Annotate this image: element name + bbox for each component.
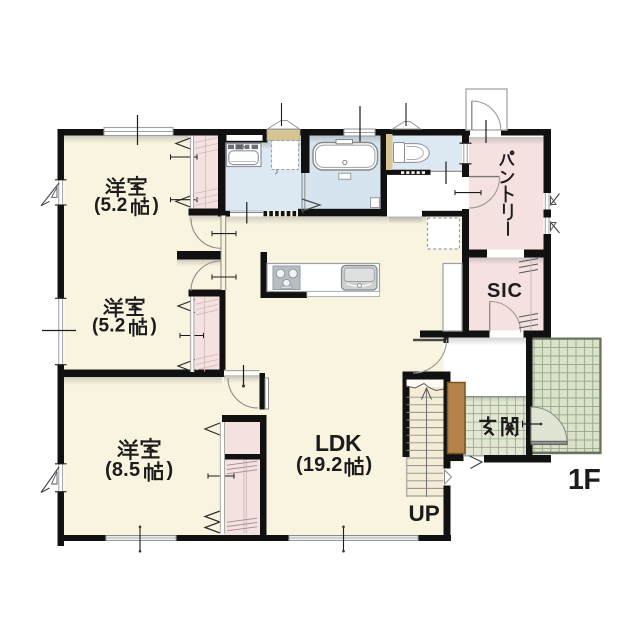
svg-text:): ) [151, 316, 157, 337]
svg-text:(5.2: (5.2 [92, 316, 126, 337]
svg-text:LDK: LDK [315, 430, 362, 456]
svg-text:1F: 1F [568, 464, 600, 496]
svg-text:): ) [153, 195, 159, 216]
svg-text:): ) [366, 454, 373, 476]
svg-text:(19.2: (19.2 [296, 454, 343, 476]
svg-text:SIC: SIC [487, 280, 523, 302]
svg-text:(8.5: (8.5 [105, 459, 140, 481]
svg-text:): ) [167, 459, 174, 481]
svg-text:UP: UP [409, 501, 440, 526]
svg-text:(5.2: (5.2 [94, 195, 128, 216]
